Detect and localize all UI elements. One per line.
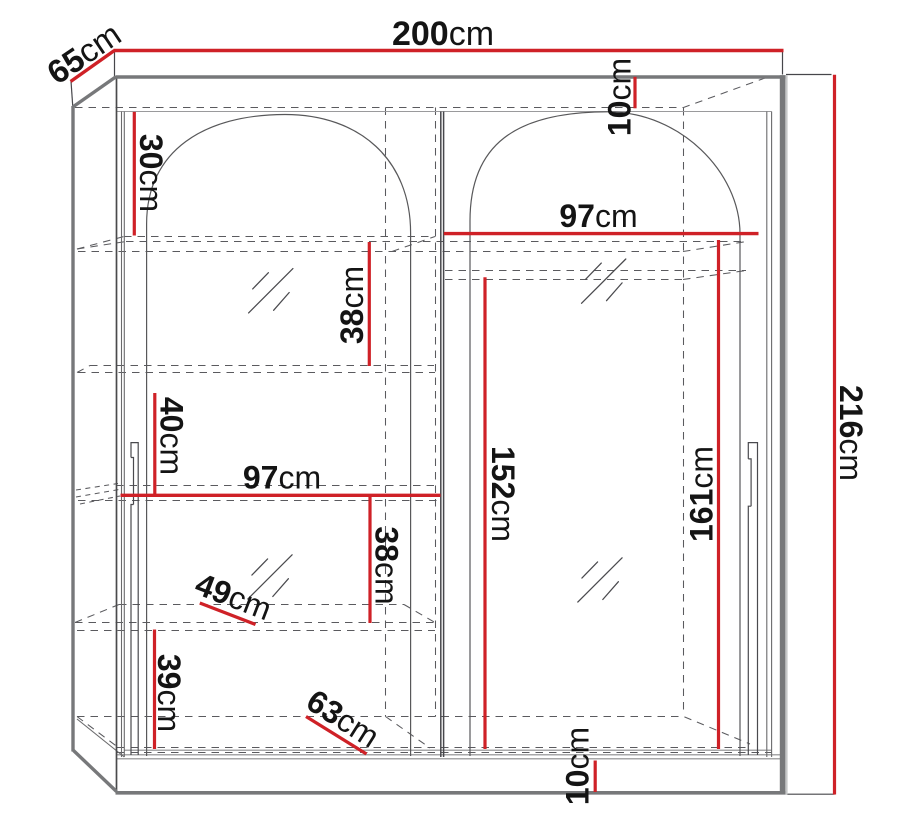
svg-text:38cm: 38cm xyxy=(334,266,370,344)
svg-text:40cm: 40cm xyxy=(154,397,190,475)
svg-text:63cm: 63cm xyxy=(300,682,385,754)
svg-text:152cm: 152cm xyxy=(485,446,521,542)
svg-text:97cm: 97cm xyxy=(559,198,637,234)
svg-text:10cm: 10cm xyxy=(602,58,638,136)
svg-text:49cm: 49cm xyxy=(191,566,277,628)
svg-text:97cm: 97cm xyxy=(243,460,321,496)
svg-text:38cm: 38cm xyxy=(368,526,404,604)
svg-text:200cm: 200cm xyxy=(392,15,494,53)
svg-text:216cm: 216cm xyxy=(833,385,869,481)
svg-text:10cm: 10cm xyxy=(560,727,596,805)
svg-text:39cm: 39cm xyxy=(151,654,187,732)
svg-text:30cm: 30cm xyxy=(133,134,169,212)
svg-text:161cm: 161cm xyxy=(684,446,720,542)
